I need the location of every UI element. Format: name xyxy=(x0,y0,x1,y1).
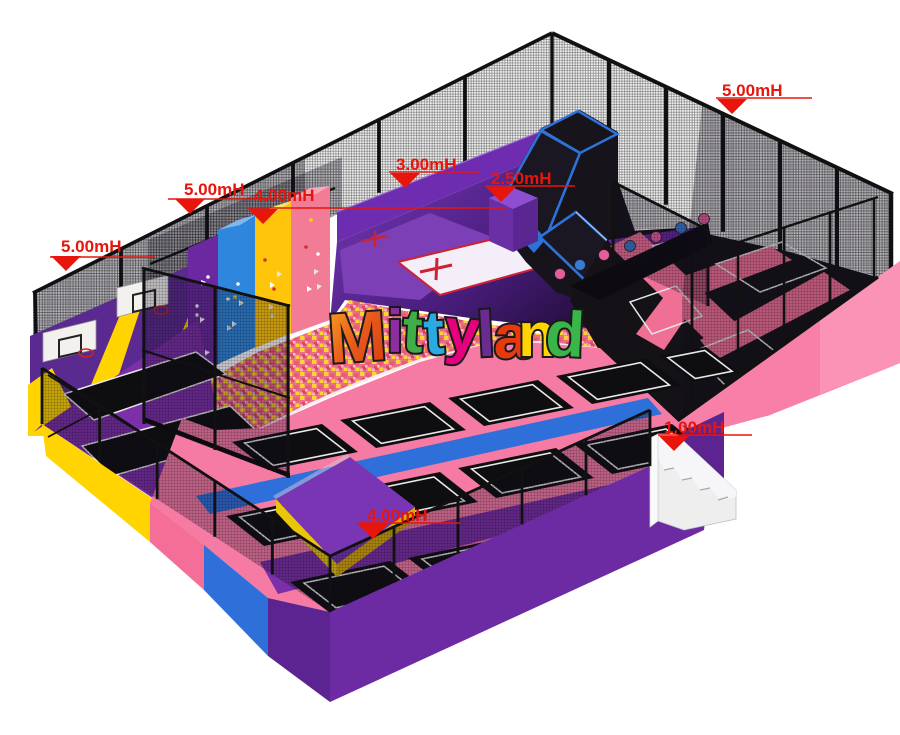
svg-text:4.00mH: 4.00mH xyxy=(367,506,427,525)
svg-text:5.00mH: 5.00mH xyxy=(61,237,121,256)
svg-text:M: M xyxy=(326,296,390,378)
svg-text:3.00mH: 3.00mH xyxy=(396,155,456,174)
svg-text:2.50mH: 2.50mH xyxy=(491,169,551,188)
svg-text:5.00mH: 5.00mH xyxy=(722,81,782,100)
svg-text:4.00mH: 4.00mH xyxy=(254,186,314,205)
svg-text:1.00mH: 1.00mH xyxy=(664,418,724,437)
svg-text:d: d xyxy=(544,297,587,371)
svg-text:5.00mH: 5.00mH xyxy=(184,180,244,199)
